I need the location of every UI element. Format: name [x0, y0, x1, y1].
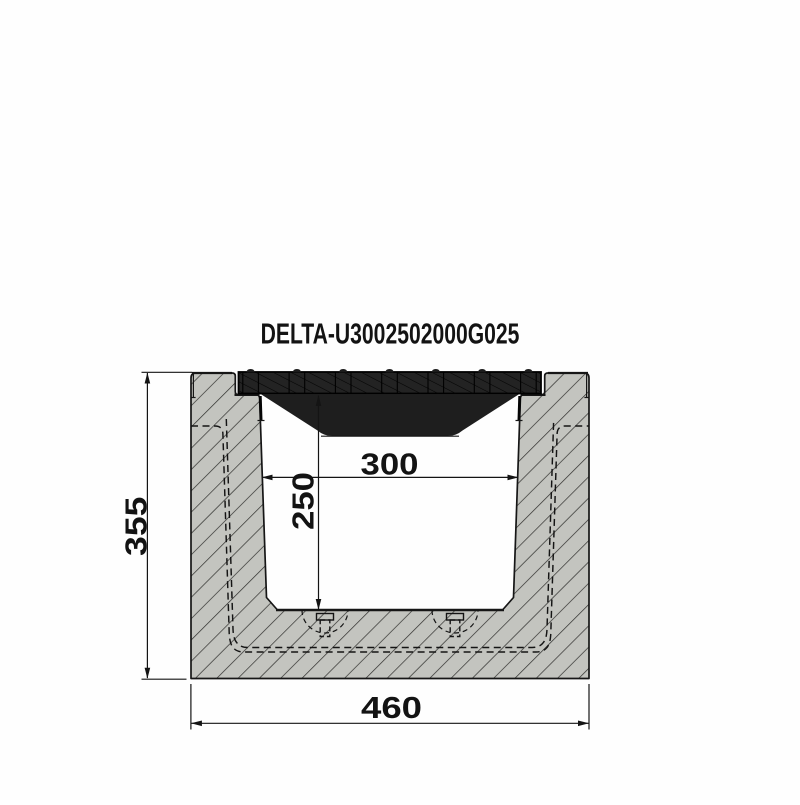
svg-text:460: 460: [361, 691, 422, 725]
svg-text:355: 355: [119, 497, 153, 556]
svg-text:DELTA-U3002502000G025: DELTA-U3002502000G025: [261, 318, 520, 350]
svg-text:300: 300: [361, 447, 419, 481]
svg-text:250: 250: [287, 472, 321, 530]
